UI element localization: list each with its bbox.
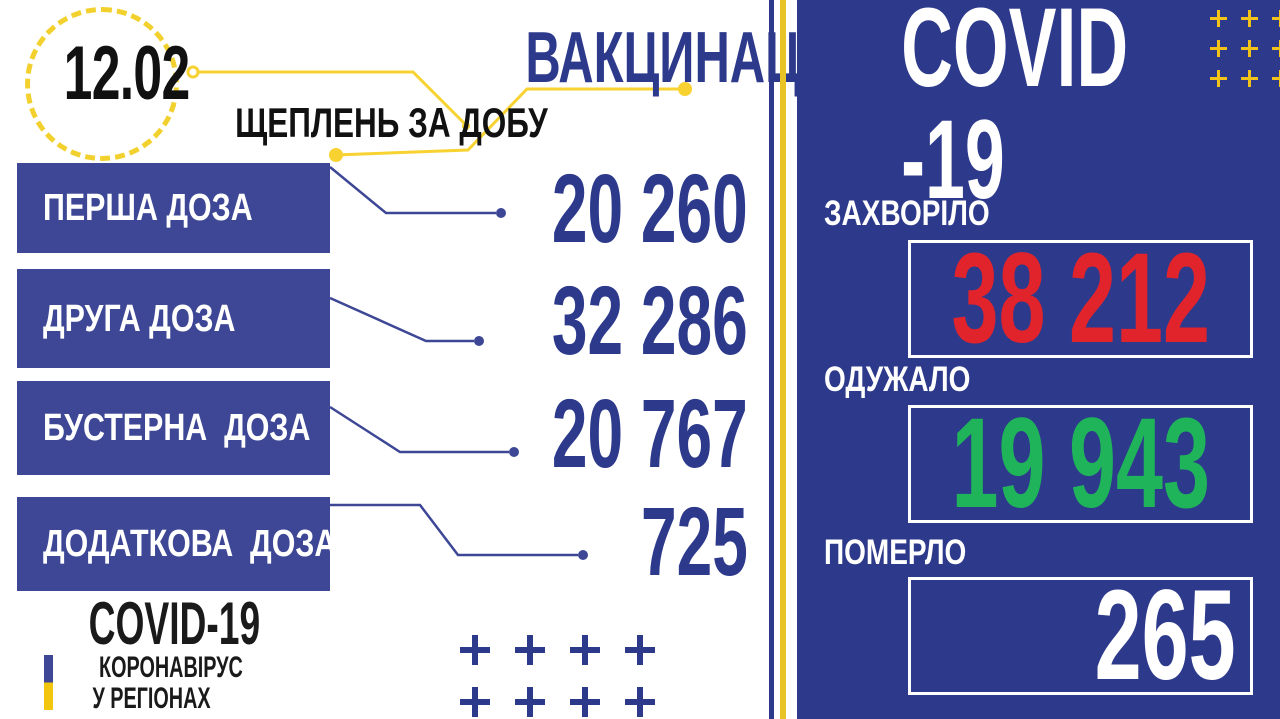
dose-bar-label: ДРУГА ДОЗА	[43, 300, 235, 338]
dose-bar-label: ПЕРША ДОЗА	[43, 189, 253, 227]
plus-icon	[515, 635, 545, 665]
plus-icon	[1272, 10, 1280, 27]
plus-icon	[460, 635, 490, 665]
plus-icon	[570, 635, 600, 665]
ukraine-flag-icon	[44, 655, 53, 710]
plus-icon	[1272, 70, 1280, 87]
daily-doses-subtitle: ЩЕПЛЕНЬ ЗА ДОБУ	[235, 102, 548, 144]
plus-icon	[1210, 10, 1227, 27]
stat-value-sick: 38 212	[951, 235, 1209, 363]
covid-panel: COVID -19 ЗАХВОРІЛО 38 212 ОДУЖАЛО 19 94…	[797, 0, 1280, 719]
plus-icon	[1210, 70, 1227, 87]
plus-icon	[1210, 40, 1227, 57]
dose-bar-additional: ДОДАТКОВА ДОЗА	[17, 497, 330, 591]
plus-icon	[1241, 10, 1258, 27]
plus-icon	[1272, 40, 1280, 57]
infographic-root: 12.02 ВАКЦИНАЦІЯ ЩЕПЛЕНЬ ЗА ДОБУ ПЕРША Д…	[0, 0, 1280, 719]
plus-icon	[625, 635, 655, 665]
stat-box-sick: 38 212	[908, 240, 1253, 358]
stat-label-died: ПОМЕРЛО	[824, 535, 966, 570]
dose-bar-label: ДОДАТКОВА ДОЗА	[43, 525, 336, 563]
plus-icon	[460, 687, 490, 717]
covid-panel-title: COVID -19	[901, 0, 1197, 216]
dose-value-additional: 725	[400, 493, 748, 590]
stat-label-recovered: ОДУЖАЛО	[824, 362, 970, 397]
dose-bar-second: ДРУГА ДОЗА	[17, 269, 330, 368]
stat-box-recovered: 19 943	[908, 405, 1253, 523]
divider-line-blue	[769, 0, 774, 719]
logo-subtitle-line2: У РЕГІОНАХ	[92, 684, 210, 714]
plus-icon	[515, 687, 545, 717]
dose-value-first: 20 260	[400, 160, 748, 257]
stat-box-died: 265	[908, 577, 1253, 695]
plus-decoration-top-right	[1203, 3, 1280, 93]
plus-icon	[570, 687, 600, 717]
plus-decoration-bottom	[447, 624, 667, 719]
dose-bar-booster: БУСТЕРНА ДОЗА	[17, 381, 330, 475]
divider-line-yellow	[780, 0, 786, 719]
stat-label-sick: ЗАХВОРІЛО	[824, 196, 990, 231]
dose-bar-first: ПЕРША ДОЗА	[17, 163, 330, 253]
dose-value-second: 32 286	[400, 272, 748, 369]
dose-bar-label: БУСТЕРНА ДОЗА	[43, 409, 310, 447]
logo-subtitle-line1: КОРОНАВІРУС	[99, 653, 243, 683]
dose-value-booster: 20 767	[400, 385, 748, 482]
date-label: 12.02	[64, 36, 190, 112]
plus-icon	[1241, 70, 1258, 87]
logo-title: COVID-19	[89, 594, 261, 654]
plus-icon	[1241, 40, 1258, 57]
stat-value-recovered: 19 943	[951, 400, 1209, 528]
plus-icon	[625, 687, 655, 717]
stat-value-died: 265	[1095, 572, 1236, 700]
